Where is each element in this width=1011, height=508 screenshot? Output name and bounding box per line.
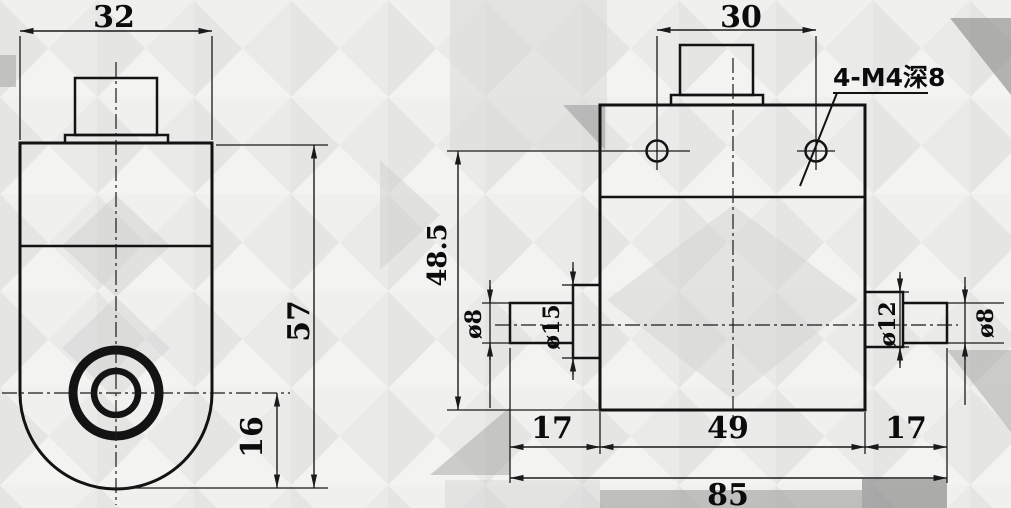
thread-note-label: 4-M4深8 bbox=[833, 63, 945, 92]
dim-collar-left-dia-label: ø15 bbox=[539, 304, 565, 349]
dim-total-len-label: 85 bbox=[707, 478, 749, 508]
dim-side-width-label: 32 bbox=[93, 0, 135, 35]
engineering-drawing: 32 57 16 bbox=[0, 0, 1011, 508]
dim-hole-spacing-label: 30 bbox=[720, 0, 762, 35]
drawing-canvas: 32 57 16 bbox=[0, 0, 1011, 508]
dim-side-height-label: 57 bbox=[282, 300, 317, 342]
dim-shaft-left-dia-label: ø8 bbox=[461, 309, 487, 339]
dim-shaft-left-len-label: 17 bbox=[531, 411, 573, 446]
side-view: 32 57 16 bbox=[2, 0, 328, 505]
front-connector-boss bbox=[680, 45, 753, 95]
dim-collar-right-dia-label: ø12 bbox=[875, 301, 901, 346]
dim-body-len-label: 49 bbox=[707, 411, 749, 446]
dim-side-bottom-label: 16 bbox=[235, 416, 270, 458]
left-collar bbox=[573, 285, 600, 358]
dim-shaft-right-dia-label: ø8 bbox=[973, 308, 999, 338]
right-shaft bbox=[903, 303, 947, 343]
dim-shaft-right-len-label: 17 bbox=[885, 411, 927, 446]
leader-line bbox=[800, 93, 837, 186]
dim-hole-height-label: 48.5 bbox=[423, 223, 453, 286]
